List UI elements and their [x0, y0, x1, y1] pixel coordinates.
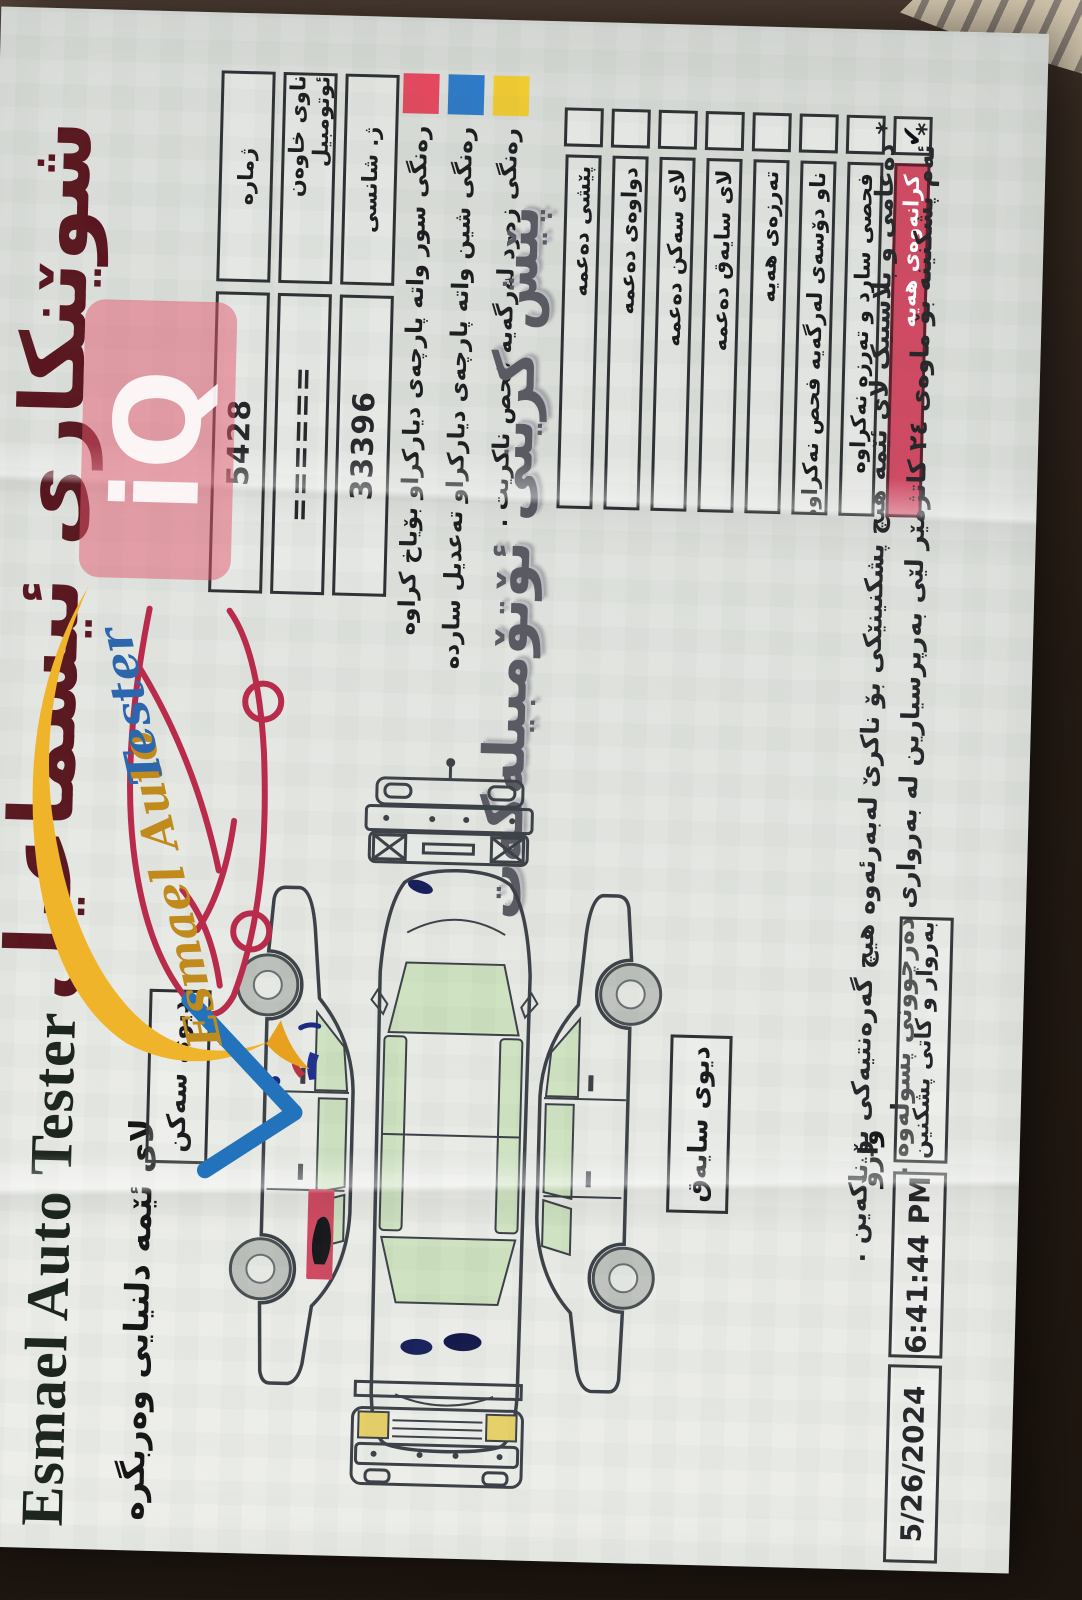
brand-logo: Esmael Auto Tester — [13, 576, 340, 1234]
driver-side-view — [532, 894, 663, 1393]
yellow-swatch-icon — [493, 75, 530, 116]
plan-view — [360, 869, 541, 1454]
checklist-label: لای سەکن دەعمه — [650, 157, 695, 512]
red-swatch-icon — [403, 73, 440, 114]
checklist-label: ناو دۆسەی لەرگەیه فحص نەکراوه — [791, 161, 836, 516]
checklist-row: دواوەی دەعمه — [601, 109, 650, 511]
checklist-row: تەرزەی هەیه — [742, 112, 791, 514]
checkbox-front-dent — [564, 107, 604, 147]
checkbox-passenger-side-dent — [658, 110, 698, 150]
checkbox-rear-dent — [611, 109, 651, 149]
checklist-label: دواوەی دەعمه — [603, 156, 648, 511]
document-content: Esmael Auto Tester شوێنکاری ئیسماعیل لای… — [0, 7, 1049, 1574]
checklist-label: لای سایەق دەعمه — [697, 158, 742, 513]
checklist-row: پێشی دەعمه — [554, 107, 603, 509]
iq-watermark: iQ — [78, 299, 237, 581]
checkbox-hail-damage — [752, 112, 792, 152]
rear-view — [351, 1381, 524, 1487]
checklist-row: لای سایەق دەعمه — [695, 111, 744, 513]
vehicle-form: ژماره 5428 ناوی خاوەن ئوتومبیل ====== ژ.… — [208, 70, 408, 597]
field-label-owner: ناوی خاوەن ئوتومبیل — [278, 72, 338, 284]
driver-side-label: دیوی سایەق — [666, 1034, 733, 1214]
checkbox-driver-side-dent — [705, 111, 745, 151]
legend-text-blue: رەنگی شین واته پارچەی دیارکراو تەعدیل سا… — [438, 126, 478, 669]
checkbox-engine-bay-not-checked — [799, 113, 839, 153]
date-time-label: بەروار و کاتی پشکنین — [893, 916, 953, 1163]
inspection-time: 6:41:44 PM — [888, 1171, 947, 1358]
field-value-chassis: 33396 — [332, 295, 394, 597]
checklist-label: تەرزەی هەیه — [744, 159, 789, 514]
logo-swoosh-tip-icon — [266, 1020, 311, 1069]
legend-text-red: رەنگی سور واته پارچەی دیارکراو بۆیاخ کرا… — [394, 125, 433, 635]
field-label-number: ژماره — [216, 70, 276, 282]
field-label-chassis: ژ. شانسی — [340, 74, 400, 286]
checklist-label: پێشی دەعمه — [556, 154, 601, 509]
field-value-owner: ====== — [270, 293, 332, 595]
inspection-sheet-paper: Esmael Auto Tester شوێنکاری ئیسماعیل لای… — [0, 7, 1049, 1574]
checklist-row: لای سەکن دەعمه — [648, 110, 697, 512]
field-row-owner: ناوی خاوەن ئوتومبیل ====== — [270, 72, 338, 595]
iq-watermark-text: iQ — [87, 366, 229, 514]
blue-swatch-icon — [448, 74, 485, 115]
inspection-date: 5/26/2024 — [883, 1364, 942, 1563]
signature-label: واژۆ — [853, 1129, 886, 1188]
front-view — [365, 757, 534, 865]
checklist-row: ناو دۆسەی لەرگەیه فحص نەکراوه — [789, 113, 838, 515]
